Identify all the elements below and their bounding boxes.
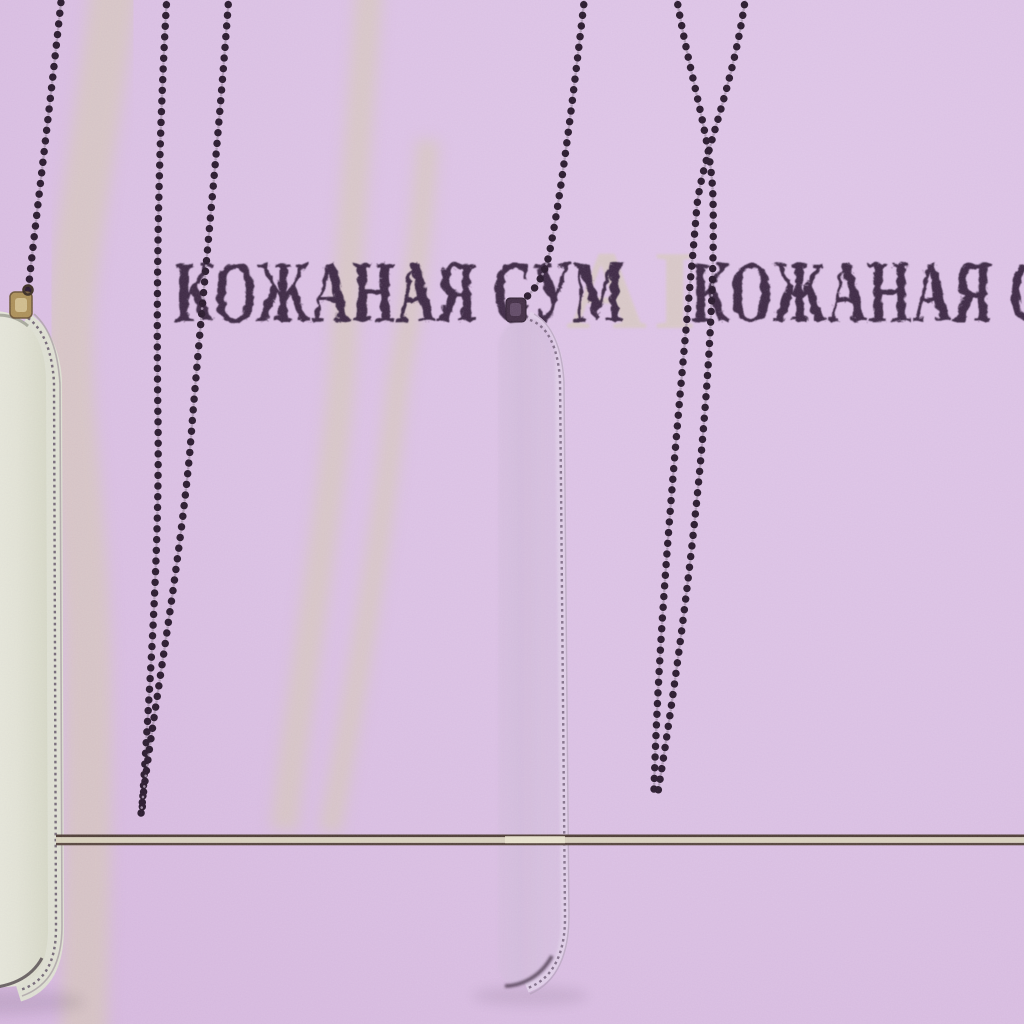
film-grain-dark: [0, 0, 1024, 1024]
product-photo: АІ КОЖАНАЯ СУМ КОЖАНАЯ СУМ: [0, 0, 1024, 1024]
photo-canvas: АІ КОЖАНАЯ СУМ КОЖАНАЯ СУМ: [0, 0, 1024, 1024]
